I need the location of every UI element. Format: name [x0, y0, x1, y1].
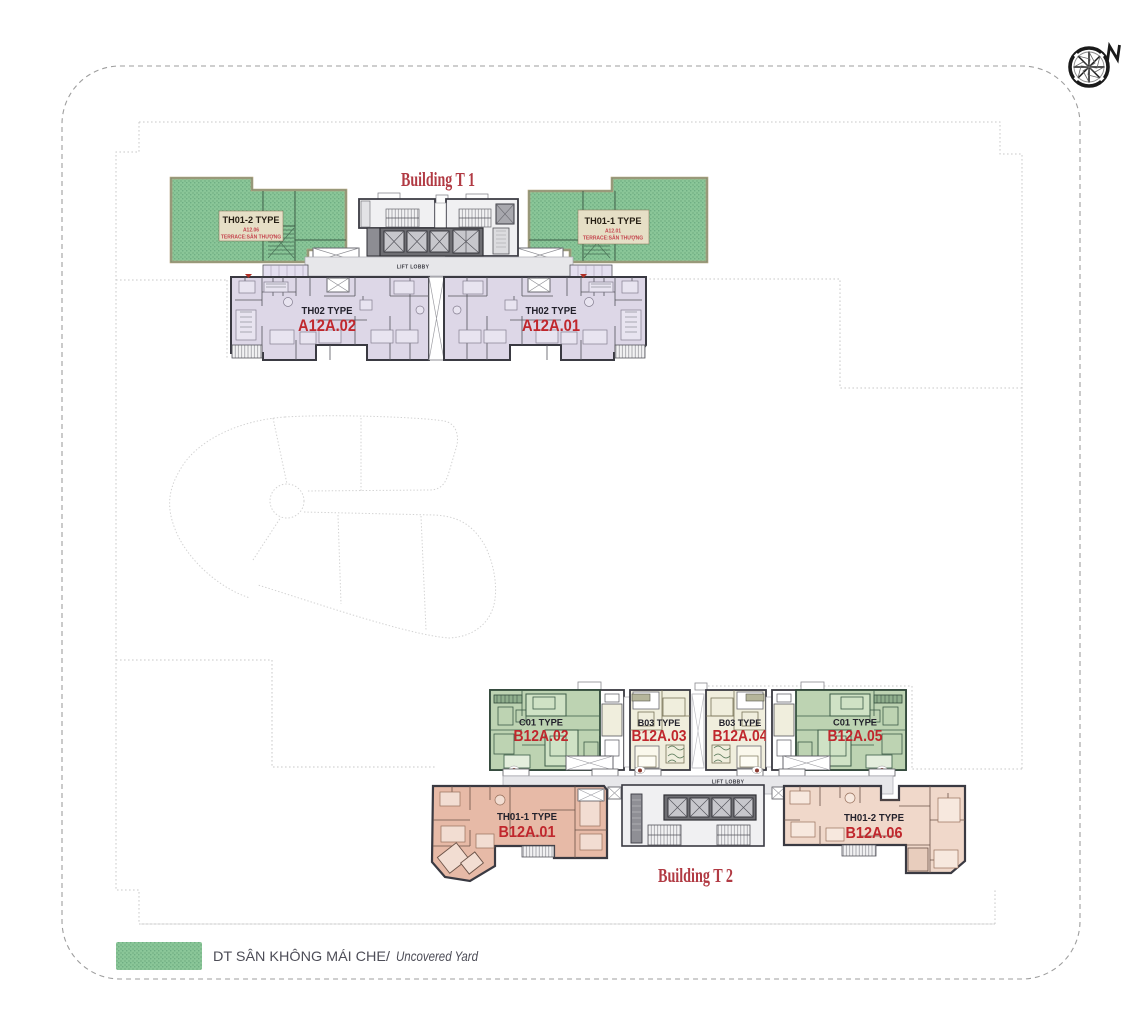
svg-text:TERRACE:SÂN THƯỢNG: TERRACE:SÂN THƯỢNG — [221, 234, 281, 241]
svg-text:C01 TYPE: C01 TYPE — [519, 718, 563, 728]
svg-text:DT SÂN KHÔNG MÁI CHE/: DT SÂN KHÔNG MÁI CHE/ — [213, 948, 390, 964]
svg-text:A12.01: A12.01 — [605, 229, 621, 235]
svg-text:B12A.05: B12A.05 — [828, 728, 883, 745]
svg-text:A12A.02: A12A.02 — [298, 316, 356, 335]
svg-text:B12A.04: B12A.04 — [713, 728, 768, 745]
svg-text:TH01-1 TYPE: TH01-1 TYPE — [585, 216, 642, 227]
svg-text:TH01-2 TYPE: TH01-2 TYPE — [223, 215, 280, 226]
svg-text:LIFT LOBBY: LIFT LOBBY — [712, 780, 745, 786]
svg-text:B03 TYPE: B03 TYPE — [638, 718, 681, 728]
svg-text:TH01-1 TYPE: TH01-1 TYPE — [497, 812, 557, 823]
svg-text:A12A.01: A12A.01 — [522, 316, 580, 335]
svg-text:C01 TYPE: C01 TYPE — [833, 718, 877, 728]
svg-text:Building T 2: Building T 2 — [658, 865, 733, 887]
svg-text:TERRACE:SÂN THƯỢNG: TERRACE:SÂN THƯỢNG — [583, 235, 643, 242]
svg-text:A12.06: A12.06 — [243, 228, 259, 234]
svg-text:B12A.06: B12A.06 — [846, 825, 903, 842]
svg-text:B12A.02: B12A.02 — [514, 728, 569, 745]
svg-text:B03 TYPE: B03 TYPE — [719, 718, 762, 728]
svg-text:B12A.03: B12A.03 — [632, 728, 687, 745]
svg-text:TH01-2 TYPE: TH01-2 TYPE — [844, 813, 904, 824]
svg-text:LIFT LOBBY: LIFT LOBBY — [397, 265, 430, 271]
svg-text:Uncovered Yard: Uncovered Yard — [396, 949, 479, 964]
svg-text:Building T 1: Building T 1 — [401, 169, 475, 191]
svg-text:B12A.01: B12A.01 — [499, 824, 556, 841]
